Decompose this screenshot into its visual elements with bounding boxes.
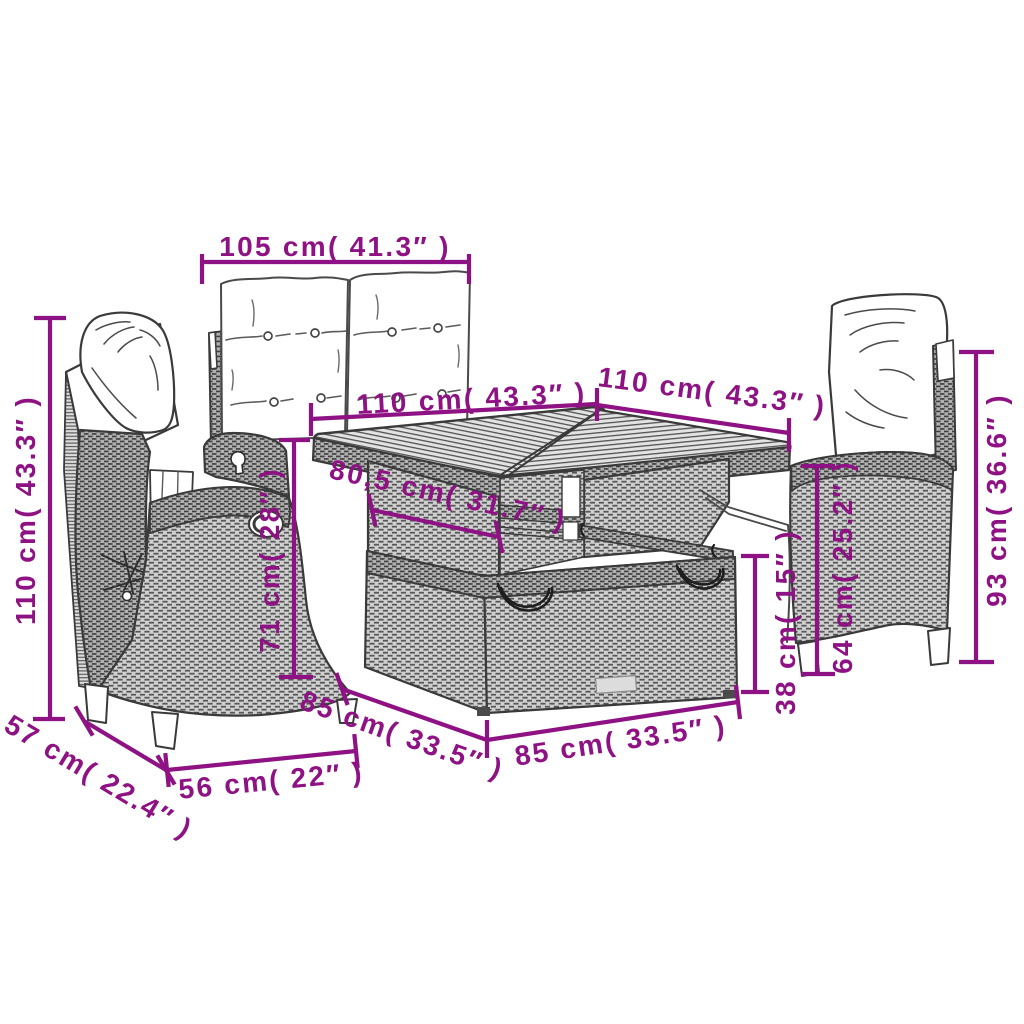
- svg-text:71 cm( 28″ ): 71 cm( 28″ ): [254, 467, 285, 653]
- svg-text:64 cm( 25.2″ ): 64 cm( 25.2″ ): [827, 460, 858, 674]
- svg-text:93 cm( 36.6″ ): 93 cm( 36.6″ ): [981, 393, 1012, 607]
- svg-text:110 cm( 43.3″ ): 110 cm( 43.3″ ): [10, 395, 41, 625]
- svg-text:105 cm( 41.3″ ): 105 cm( 41.3″ ): [219, 231, 451, 262]
- svg-text:38 cm( 15″ ): 38 cm( 15″ ): [770, 529, 801, 715]
